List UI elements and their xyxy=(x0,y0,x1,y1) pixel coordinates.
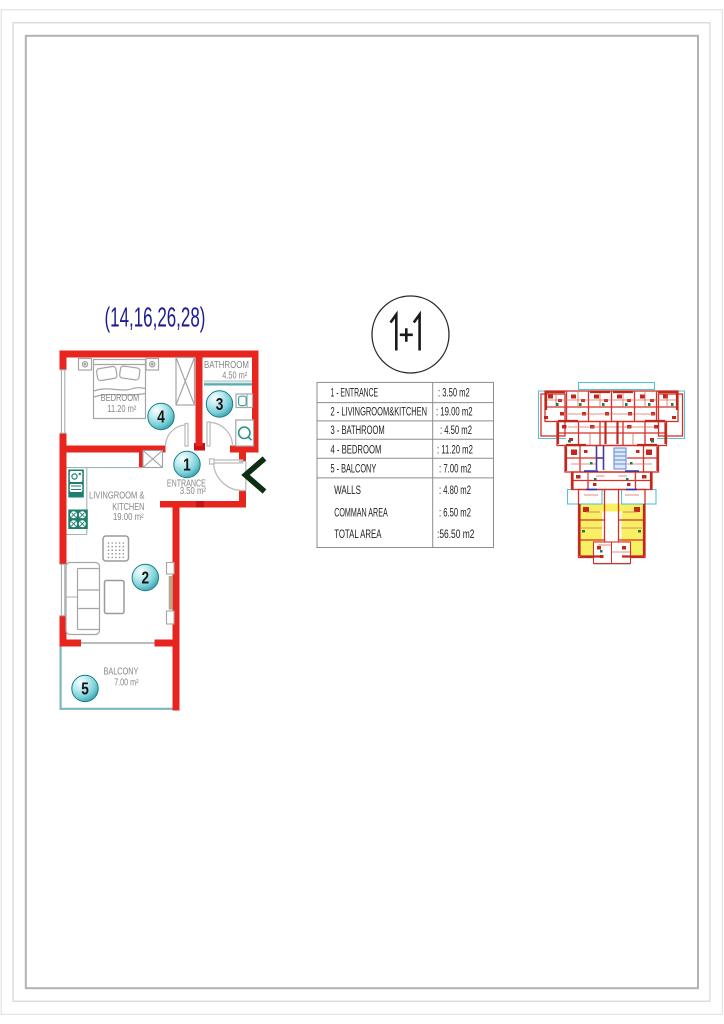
svg-text:: 19.00 m2: : 19.00 m2 xyxy=(436,406,473,419)
svg-text:2: 2 xyxy=(141,569,149,588)
svg-text:5 - BALCONY: 5 - BALCONY xyxy=(330,463,376,476)
svg-text:4: 4 xyxy=(157,408,165,427)
svg-text:: 4.80 m2: : 4.80 m2 xyxy=(439,484,471,497)
svg-text:: 11.20 m2: : 11.20 m2 xyxy=(437,444,473,457)
svg-text:: 6.50 m2: : 6.50 m2 xyxy=(439,507,471,520)
svg-text:BEDROOM: BEDROOM xyxy=(101,392,140,403)
svg-text:BALCONY: BALCONY xyxy=(104,665,139,676)
svg-text::56.50 m2: :56.50 m2 xyxy=(437,529,475,542)
svg-text:3: 3 xyxy=(216,396,224,415)
svg-text:: 7.00 m2: : 7.00 m2 xyxy=(439,463,472,476)
svg-text:7.00 m²: 7.00 m² xyxy=(114,676,138,687)
svg-text:TOTAL AREA: TOTAL AREA xyxy=(334,529,381,542)
svg-text:1: 1 xyxy=(183,456,191,475)
svg-text:WALLS: WALLS xyxy=(334,485,361,498)
svg-text:2 - LIVINGROOM&KITCHEN: 2 - LIVINGROOM&KITCHEN xyxy=(331,406,428,419)
svg-text:4.50 m²: 4.50 m² xyxy=(222,369,247,380)
svg-text:11.20 m²: 11.20 m² xyxy=(107,403,136,414)
svg-text:3 - BATHROOM: 3 - BATHROOM xyxy=(330,425,384,438)
svg-text:: 4.50 m2: : 4.50 m2 xyxy=(440,425,472,438)
svg-text:19.00 m²: 19.00 m² xyxy=(113,511,144,522)
svg-text:(14,16,26,28): (14,16,26,28) xyxy=(104,301,205,332)
svg-text:1 - ENTRANCE: 1 - ENTRANCE xyxy=(330,387,378,401)
svg-text:5: 5 xyxy=(81,680,89,699)
svg-text:COMMAN AREA: COMMAN AREA xyxy=(334,507,388,520)
svg-text:3.50 m²: 3.50 m² xyxy=(180,485,206,496)
svg-text:LIVINGROOM &: LIVINGROOM & xyxy=(89,489,145,500)
svg-text:4 - BEDROOM: 4 - BEDROOM xyxy=(330,444,381,457)
svg-text:: 3.50 m2: : 3.50 m2 xyxy=(438,387,470,400)
